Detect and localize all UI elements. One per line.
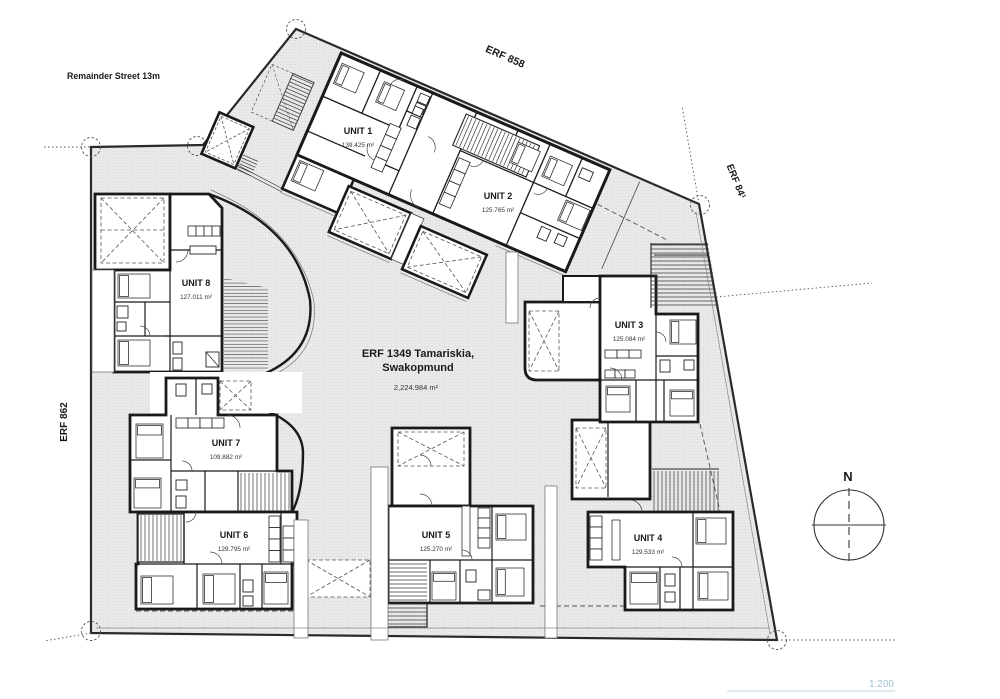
svg-text:ERF 862: ERF 862: [59, 402, 70, 442]
svg-text:UNIT 1: UNIT 1: [344, 126, 373, 136]
svg-text:125.084 m²: 125.084 m²: [613, 336, 645, 343]
svg-text:129.795 m²: 129.795 m²: [218, 546, 250, 553]
svg-text:Remainder Street 13m: Remainder Street 13m: [67, 71, 160, 81]
svg-text:125.270 m²: 125.270 m²: [420, 546, 452, 553]
svg-text:UNIT 7: UNIT 7: [212, 438, 241, 448]
svg-text:127.011 m²: 127.011 m²: [180, 294, 212, 301]
svg-text:139.425 m²: 139.425 m²: [342, 142, 374, 149]
svg-text:UNIT 2: UNIT 2: [484, 191, 513, 201]
svg-text:129.533 m²: 129.533 m²: [632, 549, 664, 556]
svg-text:UNIT 3: UNIT 3: [615, 320, 644, 330]
svg-text:N: N: [843, 469, 852, 484]
svg-text:UNIT 8: UNIT 8: [182, 278, 211, 288]
svg-text:UNIT 4: UNIT 4: [634, 533, 663, 543]
svg-text:UNIT 5: UNIT 5: [422, 530, 451, 540]
svg-text:UNIT 6: UNIT 6: [220, 530, 249, 540]
svg-text:1:200: 1:200: [869, 679, 894, 690]
svg-text:109.882 m²: 109.882 m²: [210, 454, 242, 461]
svg-text:125.765 m²: 125.765 m²: [482, 207, 514, 214]
svg-text:2,224.984 m²: 2,224.984 m²: [394, 383, 439, 392]
svg-text:Swakopmund: Swakopmund: [382, 362, 454, 374]
svg-text:ERF 1349 Tamariskia,: ERF 1349 Tamariskia,: [362, 348, 474, 360]
